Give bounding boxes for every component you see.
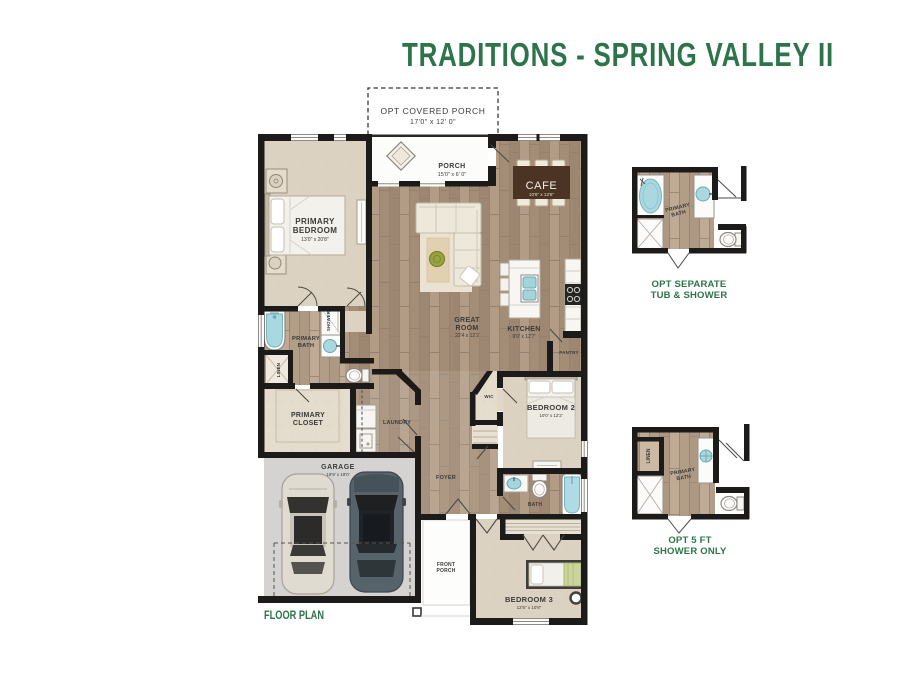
svg-text:BEDROOM 2: BEDROOM 2: [527, 403, 575, 412]
svg-text:CAFE: CAFE: [526, 180, 558, 192]
svg-text:13'0" x 20'8": 13'0" x 20'8": [301, 237, 329, 243]
svg-text:22'4 x 12'2: 22'4 x 12'2: [455, 333, 479, 339]
svg-text:BEDROOM 3: BEDROOM 3: [505, 595, 553, 604]
svg-text:SHOWER: SHOWER: [326, 311, 331, 331]
svg-text:SHOWER ONLY: SHOWER ONLY: [653, 546, 727, 557]
svg-text:9'0' x 12'7': 9'0' x 12'7': [512, 334, 535, 340]
svg-text:PRIMARY: PRIMARY: [292, 336, 320, 342]
svg-text:10'0' x 12'2': 10'0' x 12'2': [539, 413, 562, 418]
svg-text:TRADITIONS - SPRING VALLEY II: TRADITIONS - SPRING VALLEY II: [402, 36, 834, 73]
svg-text:ROOM: ROOM: [456, 325, 479, 332]
svg-text:PORCH: PORCH: [436, 568, 455, 574]
svg-text:GREAT: GREAT: [454, 317, 480, 324]
svg-text:BATH: BATH: [528, 502, 543, 508]
svg-text:OPT SEPARATE: OPT SEPARATE: [652, 279, 727, 290]
svg-text:FOYER: FOYER: [436, 475, 456, 481]
svg-text:OPT 5 FT: OPT 5 FT: [668, 535, 711, 546]
svg-text:BEDROOM: BEDROOM: [293, 226, 338, 235]
svg-text:19'9' x 18'0': 19'9' x 18'0': [326, 472, 349, 477]
svg-text:12'6" x 10'8": 12'6" x 10'8": [517, 605, 542, 610]
svg-text:LINEN: LINEN: [276, 363, 281, 378]
svg-text:BATH: BATH: [298, 343, 314, 349]
svg-text:WIC: WIC: [484, 394, 494, 399]
svg-text:GARAGE: GARAGE: [321, 464, 355, 471]
svg-text:PRIMARY: PRIMARY: [295, 217, 335, 226]
svg-text:LINEN: LINEN: [646, 448, 652, 463]
svg-text:15'0" x 6' 0": 15'0" x 6' 0": [438, 172, 467, 178]
svg-text:17'0" x 12' 0": 17'0" x 12' 0": [410, 119, 456, 126]
svg-text:PANTRY: PANTRY: [559, 350, 579, 355]
svg-text:PRIMARY: PRIMARY: [291, 412, 325, 419]
svg-text:OPT COVERED PORCH: OPT COVERED PORCH: [381, 106, 486, 116]
svg-text:FLOOR PLAN: FLOOR PLAN: [264, 610, 324, 622]
svg-text:10'6" x 12'6": 10'6" x 12'6": [529, 192, 555, 197]
svg-text:CLOSET: CLOSET: [293, 420, 324, 427]
svg-text:KITCHEN: KITCHEN: [507, 326, 540, 333]
svg-text:PORCH: PORCH: [438, 163, 465, 170]
svg-text:LAUNDRY: LAUNDRY: [383, 420, 411, 426]
svg-text:TUB & SHOWER: TUB & SHOWER: [651, 290, 728, 301]
